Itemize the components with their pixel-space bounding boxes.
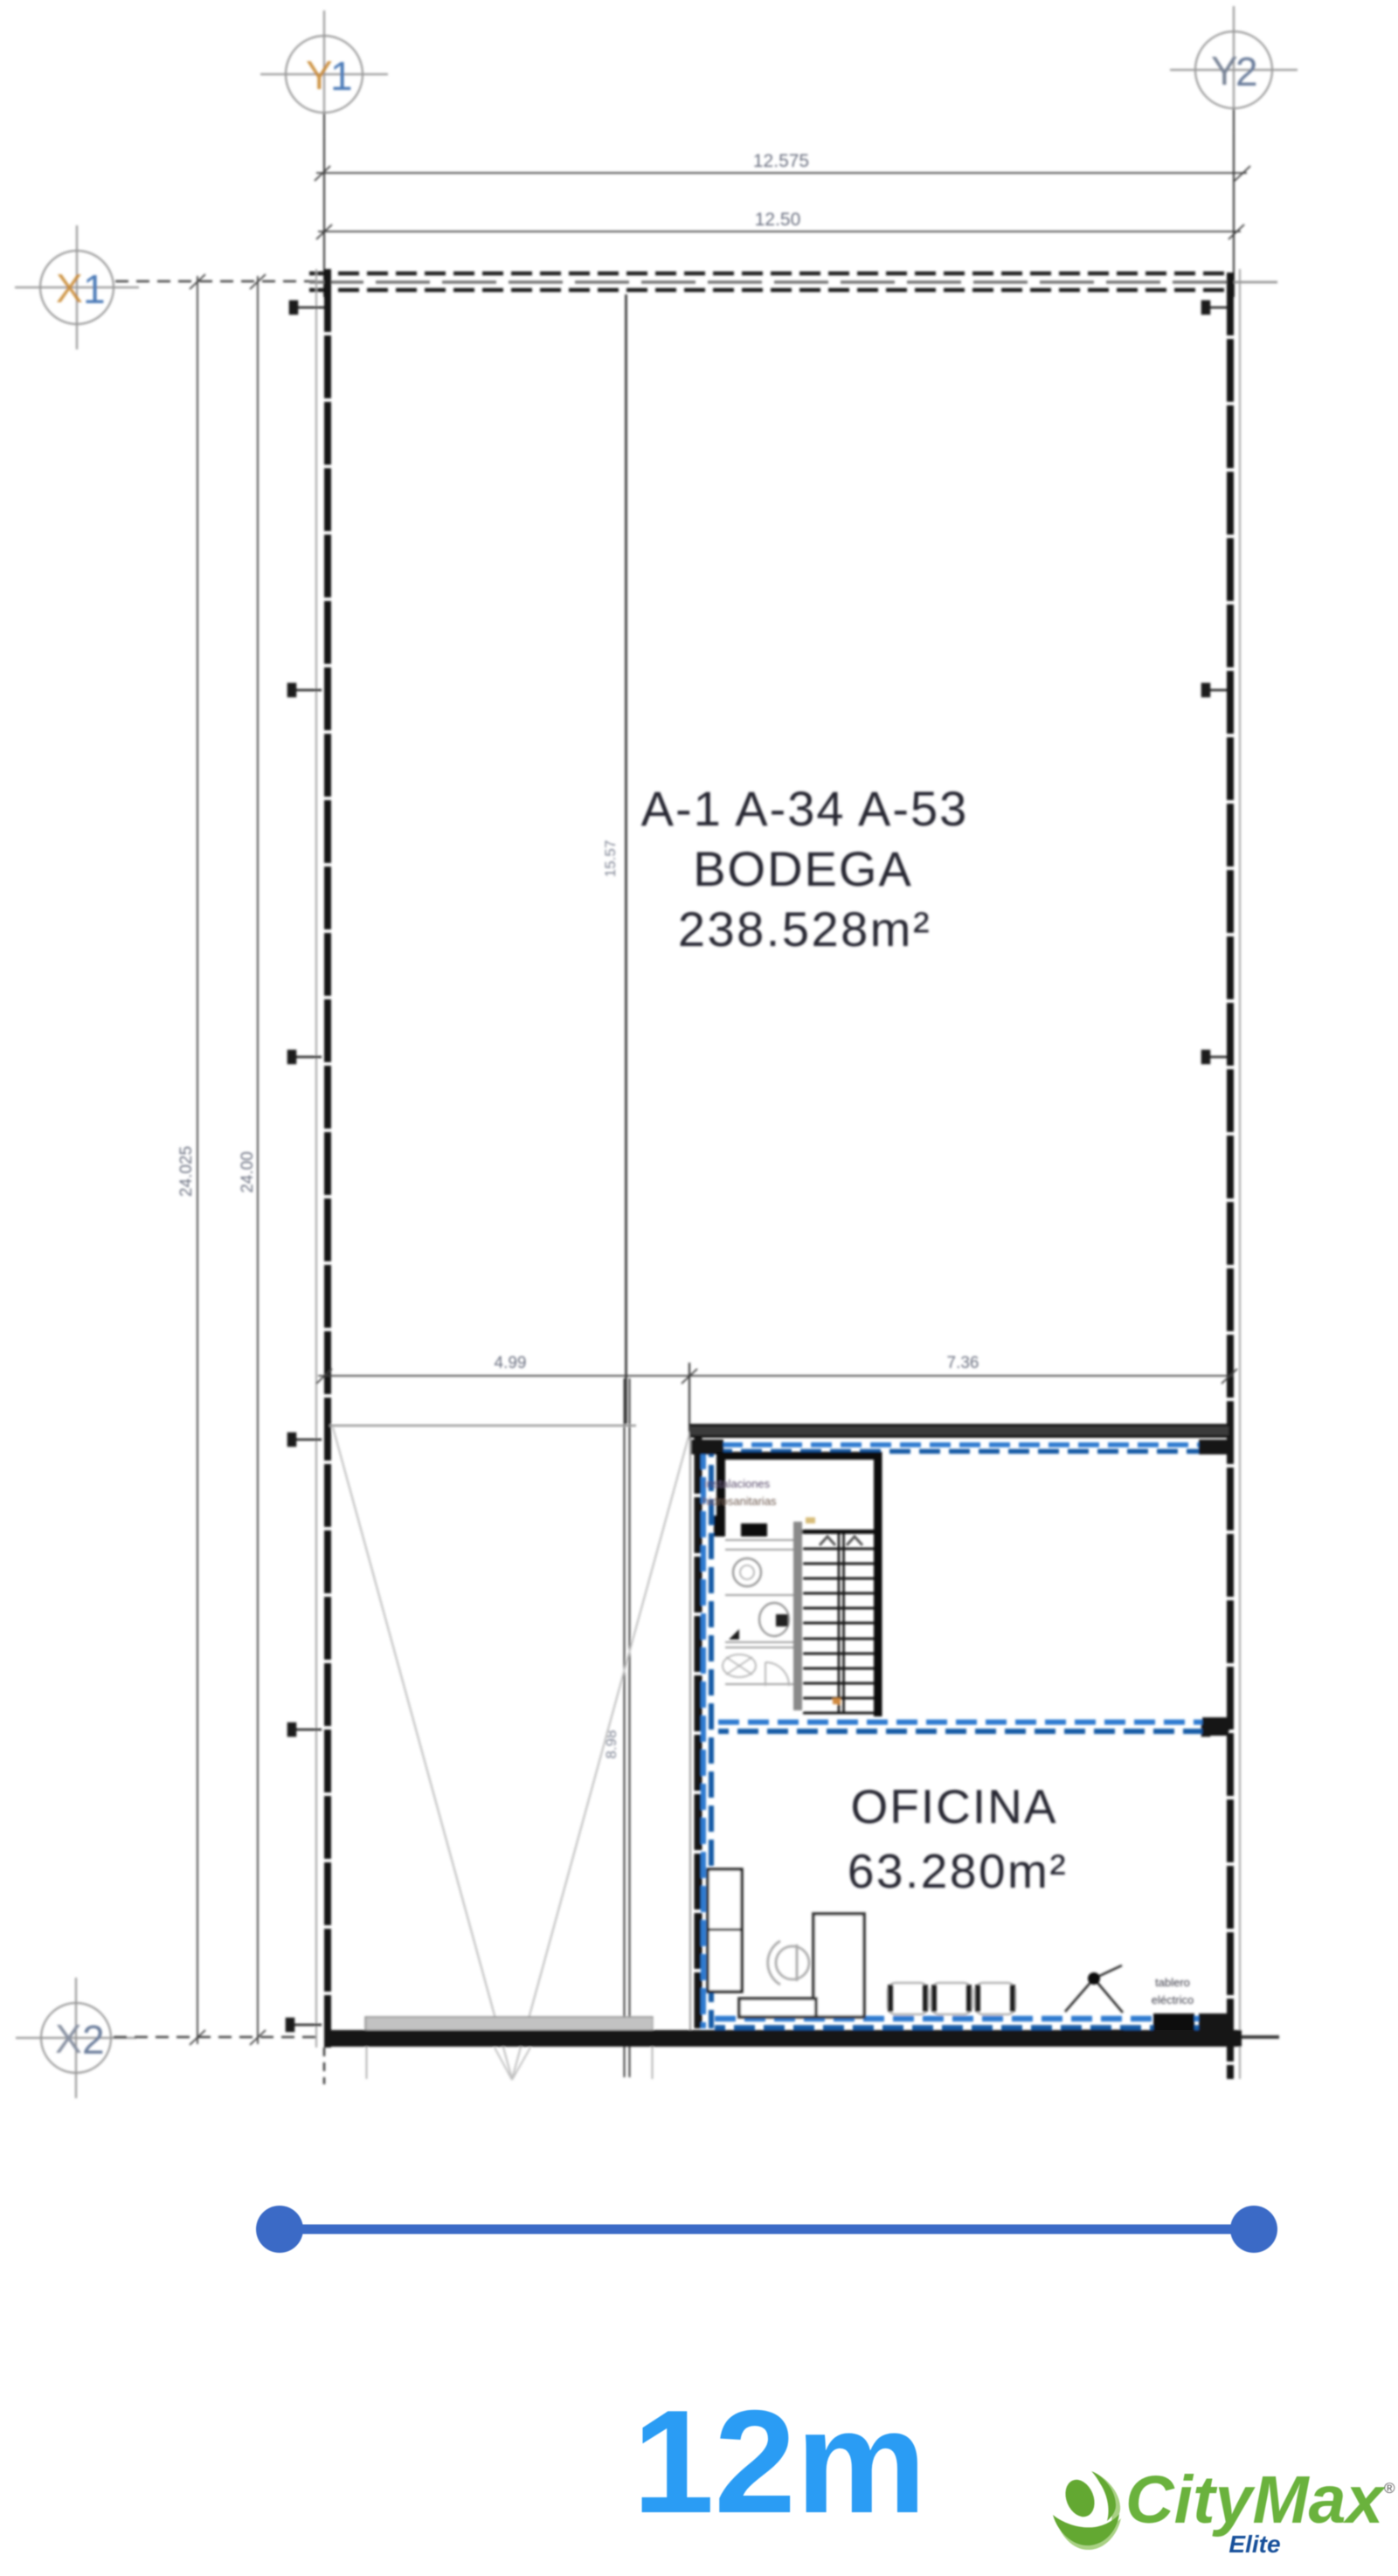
svg-text:1: 1 [83, 266, 106, 312]
svg-text:A-1 A-34 A-53: A-1 A-34 A-53 [641, 781, 969, 836]
svg-text:X: X [56, 266, 83, 311]
svg-text:24.025: 24.025 [177, 1146, 196, 1197]
svg-text:Y: Y [1211, 48, 1238, 93]
svg-text:63.280m²: 63.280m² [848, 1844, 1068, 1898]
svg-text:BODEGA: BODEGA [693, 841, 913, 896]
svg-text:OFICINA: OFICINA [850, 1779, 1057, 1834]
svg-text:Elite: Elite [1228, 2531, 1280, 2558]
svg-text:Y: Y [306, 52, 333, 98]
svg-text:12.50: 12.50 [755, 210, 801, 230]
svg-text:238.528m²: 238.528m² [678, 901, 931, 957]
svg-text:15.57: 15.57 [602, 840, 619, 878]
svg-text:24.00: 24.00 [239, 1151, 257, 1193]
svg-text:hidrosanitarias: hidrosanitarias [702, 1495, 777, 1508]
svg-text:1: 1 [330, 53, 353, 99]
svg-text:2: 2 [82, 2017, 105, 2062]
svg-text:4.99: 4.99 [495, 1354, 527, 1372]
svg-text:eléctrico: eléctrico [1152, 1993, 1194, 2006]
svg-text:X: X [55, 2016, 82, 2061]
svg-text:®: ® [1384, 2480, 1395, 2497]
svg-text:12m: 12m [633, 2379, 926, 2544]
svg-text:CityMax: CityMax [1125, 2462, 1386, 2538]
svg-text:8.98: 8.98 [603, 1730, 619, 1758]
svg-text:2: 2 [1235, 49, 1258, 94]
svg-text:12.575: 12.575 [753, 151, 809, 171]
svg-text:tablero: tablero [1155, 1976, 1190, 1989]
svg-text:7.36: 7.36 [947, 1354, 979, 1372]
svg-text:instalaciones: instalaciones [704, 1477, 771, 1490]
